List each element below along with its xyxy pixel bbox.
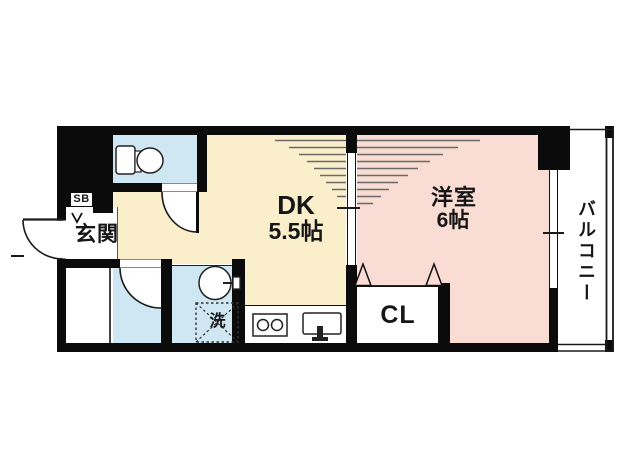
toilet-door <box>162 192 198 233</box>
laundry-label: 洗 <box>206 313 229 330</box>
western-room-label: 洋室 <box>405 186 503 210</box>
shoebox-arrow-icon <box>72 213 82 222</box>
closet-folding-door <box>355 264 442 286</box>
entrance-label: 玄関 <box>56 224 138 247</box>
closet-label: CL <box>358 302 438 329</box>
dk-room-label: DK <box>246 191 346 219</box>
balcony-label: バルコニー <box>574 186 598 316</box>
stove-icon <box>253 314 287 336</box>
dk-room-size-label: 5.5帖 <box>243 219 349 244</box>
floorplan-page: { "floorplan": { "labels": { "entrance":… <box>0 0 640 469</box>
washroom-door <box>120 268 161 308</box>
sink-icon <box>303 313 341 341</box>
floorplan-canvas: SB 玄関 DK 5.5帖 洋室 6帖 CL 洗 バルコニー <box>0 0 640 469</box>
shoebox-label: SB <box>70 194 93 206</box>
toilet-icon <box>116 146 163 174</box>
western-room-size-label: 6帖 <box>405 210 501 233</box>
washbasin-icon <box>199 267 240 300</box>
